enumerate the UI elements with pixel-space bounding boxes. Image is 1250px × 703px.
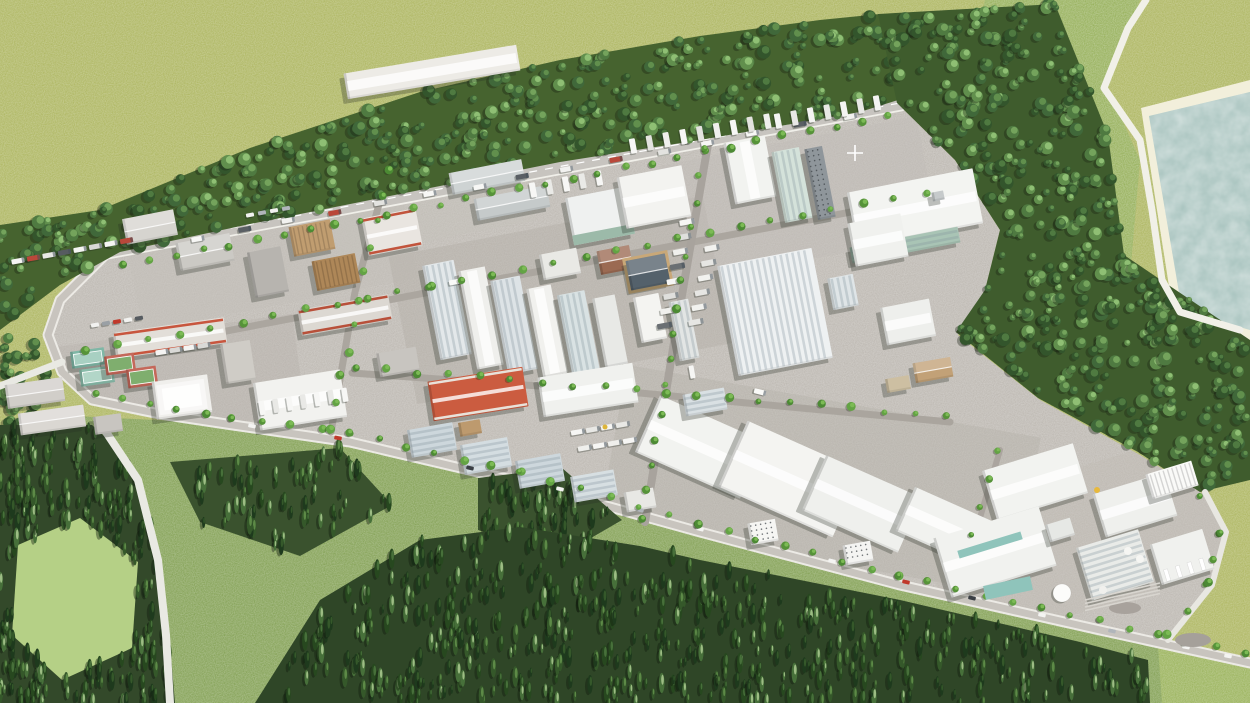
yellow-forklift: [603, 425, 608, 430]
tank: [1124, 547, 1132, 555]
aerial-3d-render-industrial-park: [0, 0, 1250, 703]
scene-container: [0, 0, 1250, 703]
gray-mid-building: [215, 340, 256, 389]
paved-oval: [1175, 633, 1211, 647]
tank: [1099, 586, 1107, 594]
tank: [1136, 555, 1144, 563]
spherical-tank: [1053, 584, 1071, 602]
yellow-crane: [1094, 487, 1100, 493]
